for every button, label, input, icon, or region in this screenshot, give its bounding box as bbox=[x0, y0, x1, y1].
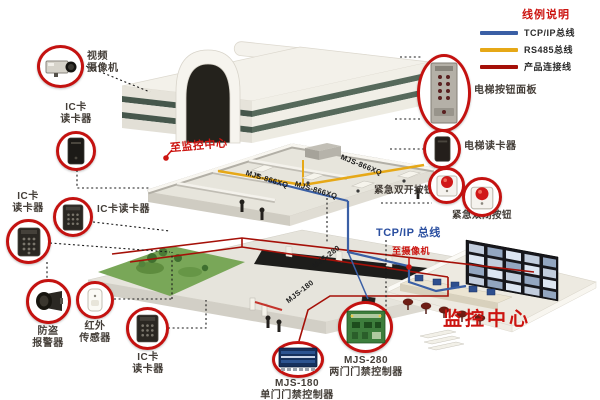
emergency-open-device bbox=[428, 167, 465, 204]
video-camera-label: 视频 摄像机 bbox=[87, 51, 133, 75]
legend-item-product: 产品连接线 bbox=[480, 60, 596, 73]
ic-reader-mid-device bbox=[53, 197, 93, 237]
elevator-reader-label: 电梯读卡器 bbox=[464, 141, 536, 153]
keypad-reader-icon bbox=[136, 314, 159, 343]
infrared-sensor-device bbox=[76, 281, 114, 319]
ic-reader-bottom-device bbox=[126, 307, 169, 350]
keypad-reader-icon bbox=[62, 204, 84, 231]
line-legend: 线例说明 TCP/IP总线 RS485总线 产品连接线 bbox=[480, 6, 596, 77]
elevator-reader-device bbox=[423, 129, 461, 169]
stairs bbox=[420, 330, 464, 350]
controller-board-blue-icon bbox=[278, 347, 318, 372]
video-camera-device bbox=[37, 45, 84, 88]
ic-reader-left-label: IC卡 读卡器 bbox=[2, 191, 54, 215]
security-system-diagram: 线例说明 TCP/IP总线 RS485总线 产品连接线 bbox=[0, 0, 600, 400]
elevator-panel-device bbox=[417, 54, 471, 132]
siren-icon bbox=[34, 290, 64, 314]
controller-board-green-icon bbox=[346, 310, 386, 344]
ic-reader-top-label: IC卡 读卡器 bbox=[50, 102, 102, 126]
tcpip-line-swatch bbox=[480, 31, 518, 35]
mjs180-controller-device bbox=[272, 341, 324, 378]
ic-reader-top-device bbox=[56, 131, 96, 171]
camera-icon bbox=[44, 56, 78, 78]
tcpip-bus-label: TCP/IP 总线 bbox=[376, 227, 456, 240]
emergency-button-icon bbox=[469, 184, 495, 211]
ic-reader-left-device bbox=[6, 219, 51, 264]
elevator-panel-icon bbox=[429, 62, 459, 124]
infrared-sensor-label: 红外 传感器 bbox=[69, 321, 121, 345]
mjs180-controller-label: MJS-180 单门门禁控制器 bbox=[244, 378, 350, 400]
card-reader-icon bbox=[434, 135, 451, 163]
ir-sensor-icon bbox=[87, 288, 103, 312]
burglar-alarm-device bbox=[26, 279, 71, 324]
emergency-close-device bbox=[462, 177, 502, 217]
ic-reader-mid-label: IC卡读卡器 bbox=[97, 204, 169, 216]
elevator-panel-label: 电梯按钮面板 bbox=[474, 85, 554, 97]
product-line-swatch bbox=[480, 65, 518, 69]
keypad-reader-icon bbox=[17, 227, 41, 257]
rs485-line-swatch bbox=[480, 48, 518, 52]
monitoring-center-title: 监控中心 bbox=[443, 309, 563, 331]
emergency-button-icon bbox=[435, 173, 459, 198]
to-camera-note: 至摄像机 bbox=[392, 246, 436, 257]
legend-item-tcpip: TCP/IP总线 bbox=[480, 26, 596, 39]
mjs280-controller-label: MJS-280 两门门禁控制器 bbox=[316, 355, 416, 379]
burglar-alarm-label: 防盗 报警器 bbox=[22, 326, 74, 350]
ic-reader-bottom-label: IC卡 读卡器 bbox=[122, 352, 174, 376]
legend-title: 线例说明 bbox=[480, 6, 596, 22]
card-reader-icon bbox=[67, 137, 85, 165]
building-top bbox=[122, 41, 430, 143]
mjs280-controller-device bbox=[338, 301, 393, 353]
legend-item-rs485: RS485总线 bbox=[480, 43, 596, 56]
